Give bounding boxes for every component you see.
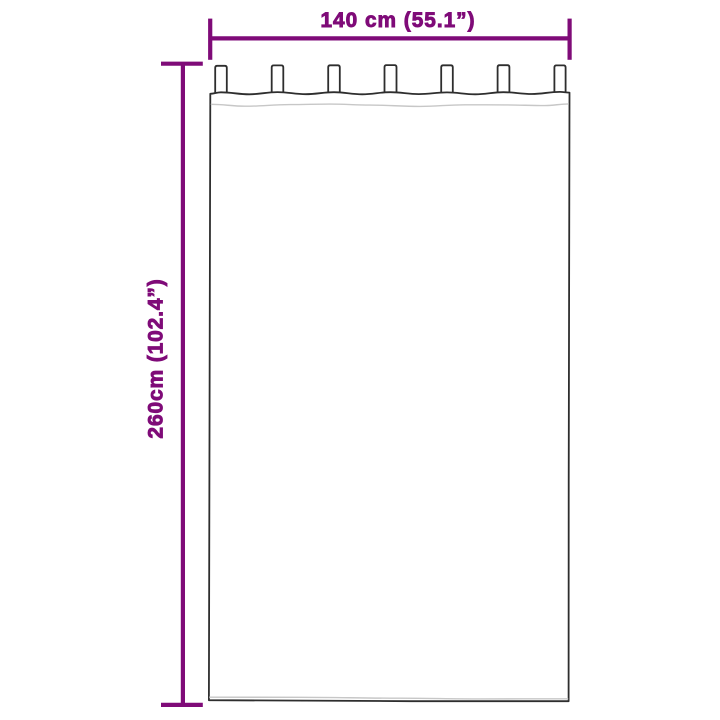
- svg-text:260cm (102.4”): 260cm (102.4”): [145, 278, 168, 438]
- svg-text:140 cm (55.1”): 140 cm (55.1”): [320, 9, 475, 32]
